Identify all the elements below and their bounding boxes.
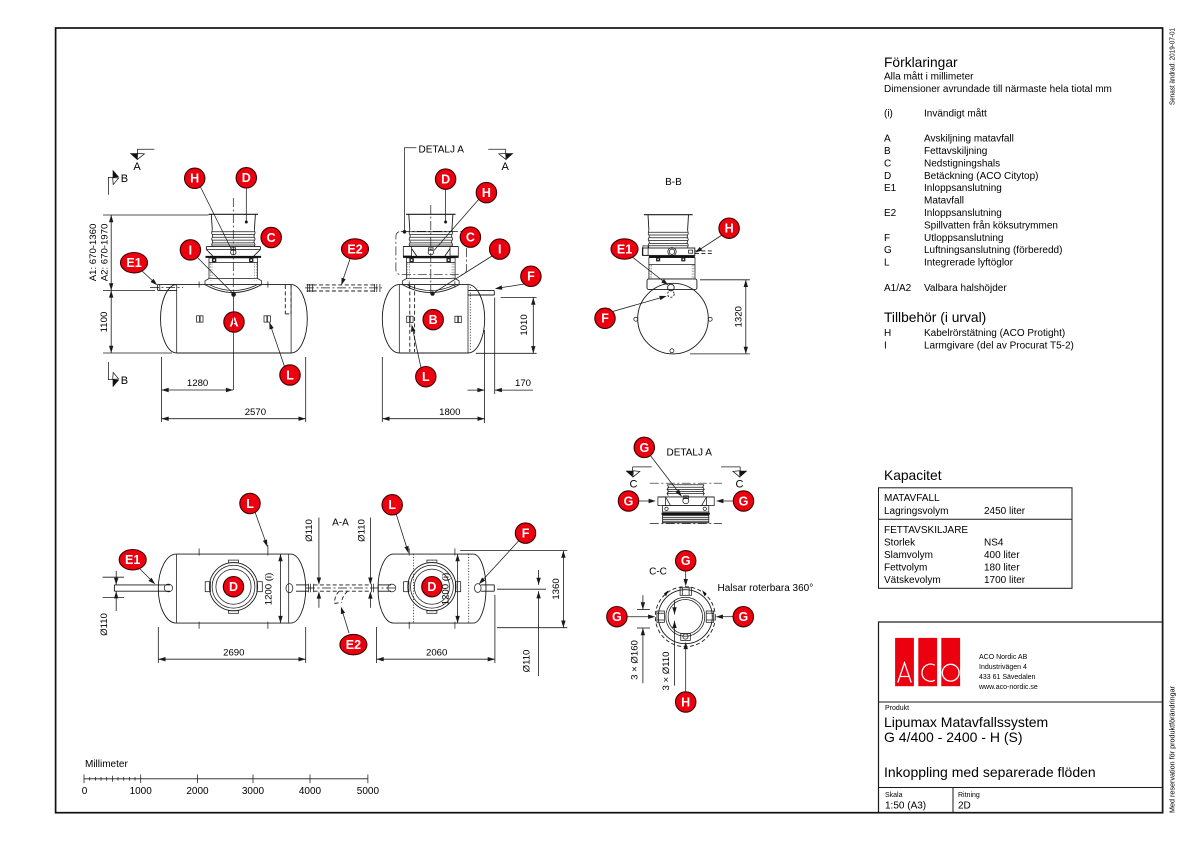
- svg-text:Betäckning (ACO Citytop): Betäckning (ACO Citytop): [924, 171, 1039, 182]
- svg-text:A1: 670-1360: A1: 670-1360: [88, 224, 99, 282]
- svg-text:E1: E1: [126, 256, 141, 270]
- svg-text:G: G: [738, 610, 748, 624]
- svg-text:2D: 2D: [958, 801, 971, 812]
- svg-text:Nedstigningshals: Nedstigningshals: [924, 158, 1000, 169]
- svg-text:L: L: [884, 258, 890, 269]
- svg-text:433 61 Sävedalen: 433 61 Sävedalen: [979, 674, 1036, 681]
- svg-text:H: H: [482, 186, 491, 200]
- svg-text:Fettavskiljning: Fettavskiljning: [924, 146, 987, 157]
- svg-text:Ø110: Ø110: [304, 519, 315, 542]
- svg-text:Ritning: Ritning: [958, 792, 980, 799]
- svg-text:Tillbehör (i urval): Tillbehör (i urval): [884, 310, 986, 325]
- svg-text:A: A: [884, 134, 891, 145]
- svg-text:H: H: [884, 328, 891, 339]
- svg-text:E1: E1: [884, 183, 897, 194]
- svg-text:E2: E2: [346, 638, 361, 652]
- svg-text:G: G: [884, 245, 892, 256]
- svg-text:Fettvolym: Fettvolym: [884, 563, 927, 574]
- svg-text:G: G: [639, 441, 649, 455]
- svg-text:2060: 2060: [426, 648, 447, 659]
- svg-text:1320: 1320: [734, 306, 745, 327]
- svg-text:1010: 1010: [519, 314, 530, 335]
- svg-text:(i): (i): [884, 109, 893, 120]
- svg-text:F: F: [601, 312, 609, 326]
- svg-text:D: D: [229, 580, 238, 594]
- svg-text:B: B: [884, 146, 891, 157]
- svg-text:E2: E2: [884, 208, 897, 219]
- svg-text:3000: 3000: [242, 786, 265, 797]
- svg-text:F: F: [522, 527, 530, 541]
- svg-text:G 4/400 - 2400 - H (S): G 4/400 - 2400 - H (S): [884, 729, 1023, 745]
- svg-text:G: G: [739, 494, 749, 508]
- svg-text:Integrerade lyftöglor: Integrerade lyftöglor: [924, 258, 1014, 269]
- svg-text:Kabelrörstätning (ACO Protight: Kabelrörstätning (ACO Protight): [924, 328, 1065, 339]
- svg-text:Avskiljning matavfall: Avskiljning matavfall: [924, 134, 1014, 145]
- svg-text:G: G: [681, 554, 691, 568]
- svg-text:D: D: [884, 171, 891, 182]
- svg-text:I: I: [189, 243, 192, 257]
- svg-text:Utloppsanslutning: Utloppsanslutning: [924, 233, 1004, 244]
- svg-text:Skala: Skala: [885, 792, 903, 799]
- svg-text:A-A: A-A: [332, 518, 349, 529]
- svg-text:400 liter: 400 liter: [984, 550, 1020, 561]
- svg-text:Dimensioner avrundade till när: Dimensioner avrundade till närmaste hela…: [884, 84, 1112, 95]
- svg-text:180 liter: 180 liter: [984, 563, 1020, 574]
- svg-text:170: 170: [515, 378, 531, 389]
- svg-text:3 × Ø110: 3 × Ø110: [661, 651, 672, 690]
- svg-text:L: L: [388, 498, 396, 512]
- svg-text:4000: 4000: [299, 786, 322, 797]
- svg-text:ACO Nordic AB: ACO Nordic AB: [979, 654, 1028, 661]
- svg-text:Lagringsvolym: Lagringsvolym: [884, 506, 948, 517]
- svg-text:2450 liter: 2450 liter: [984, 506, 1026, 517]
- svg-text:E1: E1: [125, 553, 140, 567]
- svg-text:Senast ändrad: 2019-07-01: Senast ändrad: 2019-07-01: [1170, 28, 1177, 105]
- svg-text:1100: 1100: [99, 312, 110, 333]
- svg-text:A1/A2: A1/A2: [884, 283, 912, 294]
- svg-text:C: C: [466, 231, 475, 245]
- svg-text:Millimeter: Millimeter: [85, 759, 128, 770]
- svg-text:C: C: [267, 231, 276, 245]
- svg-text:1800: 1800: [439, 407, 460, 418]
- svg-text:Ø110: Ø110: [357, 519, 368, 542]
- svg-text:A: A: [229, 315, 238, 329]
- svg-text:1280: 1280: [187, 378, 208, 389]
- svg-text:1700 liter: 1700 liter: [984, 575, 1026, 586]
- svg-text:G: G: [624, 494, 634, 508]
- svg-text:Industrivägen 4: Industrivägen 4: [979, 664, 1027, 671]
- svg-text:0: 0: [82, 786, 88, 797]
- svg-text:I: I: [498, 243, 501, 257]
- svg-text:Matavfall: Matavfall: [924, 196, 964, 207]
- svg-text:D: D: [441, 173, 450, 187]
- svg-text:Förklaringar: Förklaringar: [884, 55, 958, 70]
- svg-text:Produkt: Produkt: [885, 705, 909, 712]
- svg-text:D: D: [242, 171, 251, 185]
- svg-text:D: D: [427, 580, 436, 594]
- svg-text:Luftningsanslutning (förberedd: Luftningsanslutning (förberedd): [924, 245, 1062, 256]
- svg-text:Ø110: Ø110: [522, 650, 533, 673]
- svg-text:B-B: B-B: [665, 177, 682, 188]
- svg-text:1360: 1360: [551, 578, 562, 599]
- svg-text:C: C: [630, 479, 638, 491]
- svg-text:www.aco-nordic.se: www.aco-nordic.se: [978, 684, 1038, 691]
- svg-text:Slamvolym: Slamvolym: [884, 550, 933, 561]
- svg-text:Inloppsanslutning: Inloppsanslutning: [924, 183, 1002, 194]
- svg-text:Ø110: Ø110: [99, 613, 110, 636]
- svg-text:1:50 (A3): 1:50 (A3): [885, 801, 926, 812]
- svg-text:Med reservation för produktför: Med reservation för produktförändringar: [1170, 685, 1177, 813]
- svg-text:H: H: [190, 172, 199, 186]
- svg-text:NS4: NS4: [984, 538, 1004, 549]
- svg-text:Alla mått i millimeter: Alla mått i millimeter: [884, 71, 974, 83]
- svg-text:2570: 2570: [245, 407, 266, 418]
- svg-text:Inloppsanslutning: Inloppsanslutning: [924, 208, 1002, 219]
- svg-text:B: B: [121, 173, 128, 185]
- svg-text:1200 (i): 1200 (i): [264, 573, 275, 606]
- svg-text:MATAVFALL: MATAVFALL: [884, 493, 940, 504]
- svg-text:L: L: [286, 368, 294, 382]
- svg-text:E2: E2: [347, 242, 362, 256]
- svg-text:I: I: [884, 341, 887, 352]
- svg-text:Halsar roterbara 360°: Halsar roterbara 360°: [718, 583, 814, 594]
- svg-text:Kapacitet: Kapacitet: [884, 468, 942, 483]
- svg-text:Lipumax Matavfallssystem: Lipumax Matavfallssystem: [884, 714, 1048, 730]
- svg-text:5000: 5000: [357, 786, 380, 797]
- svg-text:A: A: [502, 161, 510, 173]
- svg-text:Invändigt mått: Invändigt mått: [924, 108, 987, 120]
- svg-text:L: L: [246, 497, 254, 511]
- svg-text:H: H: [681, 695, 690, 709]
- svg-text:FETTAVSKILJARE: FETTAVSKILJARE: [884, 525, 968, 536]
- svg-text:Vätskevolym: Vätskevolym: [884, 575, 941, 586]
- svg-text:C: C: [736, 479, 744, 491]
- svg-text:G: G: [612, 610, 622, 624]
- svg-text:2690: 2690: [223, 648, 244, 659]
- svg-text:B: B: [429, 313, 438, 327]
- svg-text:DETALJ A: DETALJ A: [667, 448, 713, 459]
- svg-text:Larmgivare (del av Procurat T5: Larmgivare (del av Procurat T5-2): [924, 341, 1074, 352]
- svg-text:2000: 2000: [186, 786, 209, 797]
- svg-text:A: A: [133, 161, 141, 173]
- svg-text:Inkoppling med separerade flöd: Inkoppling med separerade flöden: [884, 764, 1096, 780]
- svg-text:F: F: [527, 270, 535, 284]
- svg-text:1000: 1000: [130, 786, 153, 797]
- svg-text:E1: E1: [617, 242, 632, 256]
- svg-text:B: B: [121, 375, 128, 387]
- svg-text:C-C: C-C: [649, 567, 667, 578]
- svg-text:Valbara halshöjder: Valbara halshöjder: [924, 283, 1007, 294]
- svg-text:C: C: [884, 158, 891, 169]
- svg-text:3 × Ø160: 3 × Ø160: [630, 640, 641, 680]
- svg-text:Spillvatten från köksutrymmen: Spillvatten från köksutrymmen: [924, 219, 1058, 231]
- svg-text:DETALJ A: DETALJ A: [419, 145, 465, 156]
- svg-text:F: F: [884, 233, 890, 244]
- svg-text:L: L: [422, 370, 430, 384]
- svg-text:Storlek: Storlek: [884, 538, 916, 549]
- svg-text:A2: 670-1970: A2: 670-1970: [100, 224, 111, 282]
- svg-text:H: H: [725, 222, 734, 236]
